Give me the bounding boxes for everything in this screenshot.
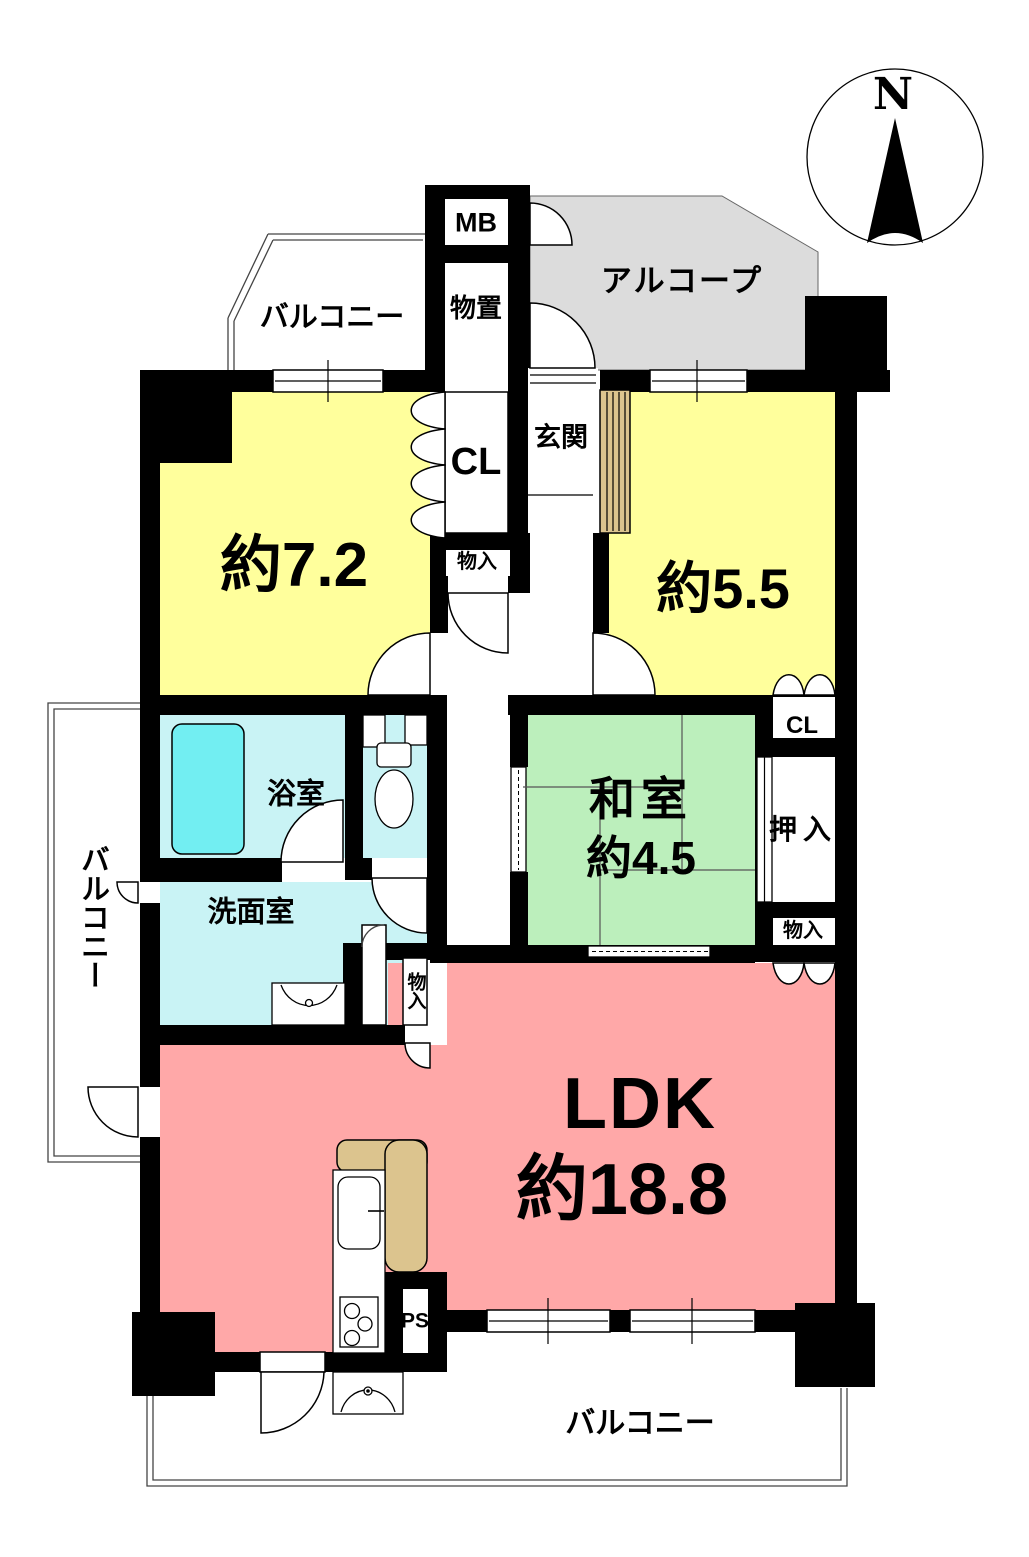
- label-storage-in-ldk: 物入: [406, 972, 425, 1010]
- gas-stove: [340, 1297, 378, 1347]
- label-balcony-left: バルコニー: [78, 845, 107, 990]
- label-balcony-bottom: バルコニー: [565, 1409, 714, 1439]
- label-washroom: 洗面室: [207, 899, 294, 928]
- label-closet-top: CL: [451, 443, 502, 481]
- label-storage-top: 物置: [450, 295, 502, 321]
- label-storage-in-top: 物入: [457, 552, 497, 572]
- label-alcove: アルコープ: [601, 266, 763, 297]
- label-closet-right: CL: [786, 714, 818, 738]
- label-ps: PS: [401, 1311, 429, 1332]
- toilet: [363, 715, 427, 828]
- label-washitsu: 和室: [589, 776, 693, 822]
- floor-plan-linework: [0, 0, 1029, 1557]
- label-balcony-top: バルコニー: [260, 304, 404, 333]
- bathtub: [172, 724, 244, 854]
- label-mb: MB: [455, 210, 497, 237]
- label-washitsu-size: 約4.5: [586, 835, 696, 881]
- washbasin: [272, 983, 345, 1025]
- label-ldk: LDK: [563, 1068, 717, 1140]
- label-storage-in-right: 物入: [783, 921, 823, 941]
- slop-sink: [333, 1372, 403, 1414]
- tatami-lines: [523, 715, 755, 945]
- floor-plan: N バルコニー MB 物置 アルコープ 玄関 CL 約7.2 物入 約5.5 浴…: [0, 0, 1029, 1557]
- kitchen-sink: [338, 1177, 380, 1249]
- label-room-5-5: 約5.5: [656, 561, 790, 617]
- label-oshiire: 押入: [769, 816, 837, 844]
- shoe-cabinet: [528, 390, 630, 533]
- label-ldk-size: 約18.8: [516, 1154, 728, 1226]
- label-entrance: 玄関: [534, 425, 588, 452]
- compass-north-label: N: [873, 73, 913, 117]
- label-room-7-2: 約7.2: [220, 535, 368, 597]
- label-bathroom: 浴室: [267, 781, 325, 810]
